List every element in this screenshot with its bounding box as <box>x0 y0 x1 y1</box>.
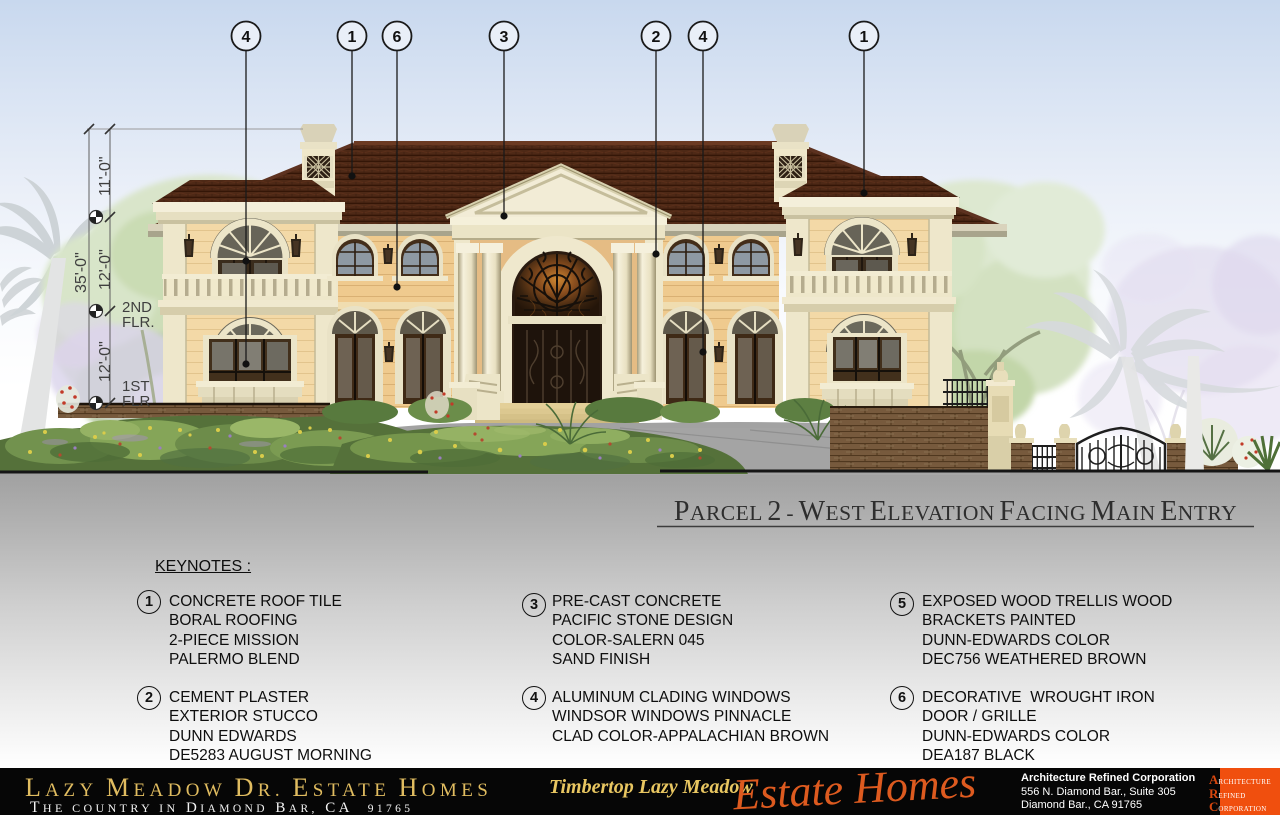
svg-text:3: 3 <box>500 29 509 46</box>
svg-text:4: 4 <box>699 29 708 46</box>
svg-text:FLR: FLR <box>122 393 151 410</box>
svg-text:4: 4 <box>242 29 251 46</box>
svg-text:2: 2 <box>652 29 661 46</box>
svg-text:1: 1 <box>348 29 357 46</box>
svg-text:11'-0": 11'-0" <box>97 156 114 196</box>
svg-text:FLR.: FLR. <box>122 314 155 331</box>
svg-text:1: 1 <box>860 29 869 46</box>
svg-text:6: 6 <box>393 29 402 46</box>
svg-text:35'-0": 35'-0" <box>73 252 90 293</box>
svg-text:12'-0": 12'-0" <box>97 249 114 290</box>
svg-text:12'-0": 12'-0" <box>97 341 114 382</box>
